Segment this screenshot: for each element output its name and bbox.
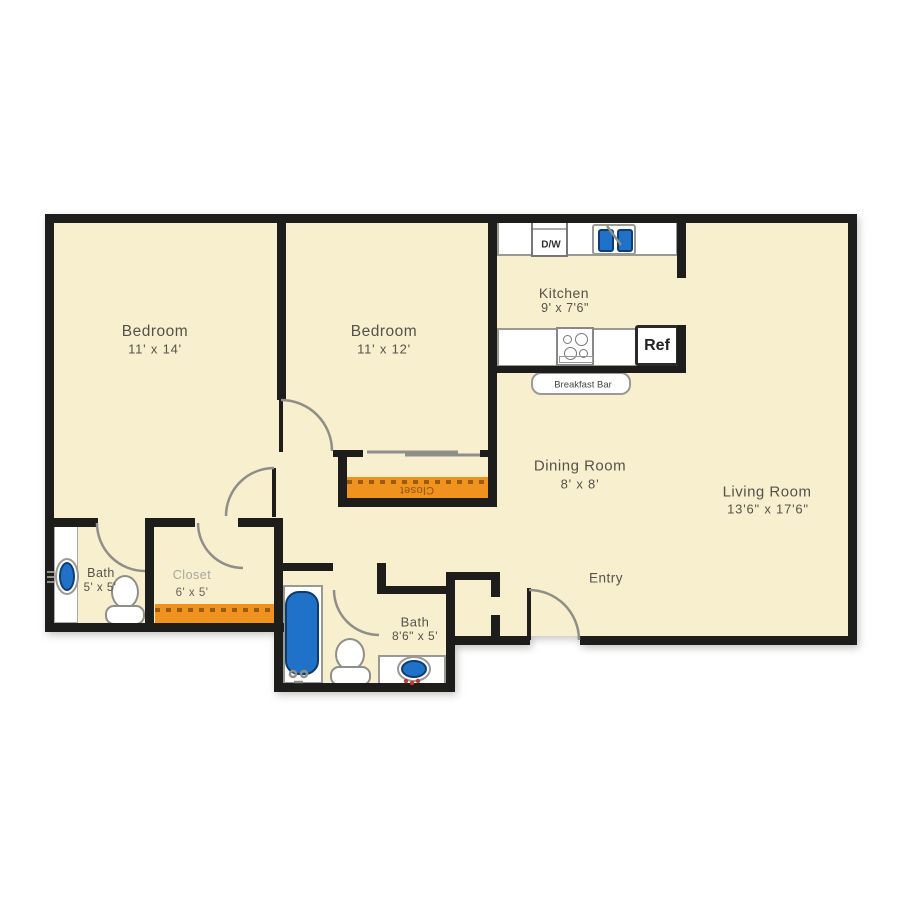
wall-exterior-top bbox=[45, 214, 857, 223]
floor-bedroom2-hall bbox=[277, 218, 497, 571]
wall-exterior-bottom-right-b bbox=[580, 636, 857, 645]
floor-living-dining bbox=[493, 218, 853, 636]
bath1-dims: 5' x 5' bbox=[84, 582, 117, 594]
breakfast-bar-label: Breakfast Bar bbox=[554, 380, 612, 391]
floor-bedroom1-area bbox=[50, 218, 286, 632]
bath2-label: Bath bbox=[401, 615, 430, 630]
sink-bowl bbox=[59, 562, 75, 591]
breakfast-bar: Breakfast Bar bbox=[531, 372, 631, 395]
bathtub-icon bbox=[285, 591, 319, 675]
dining-room-dims: 8' x 8' bbox=[561, 477, 600, 492]
bath1-sink-icon bbox=[55, 558, 79, 595]
living-room-label: Living Room bbox=[723, 484, 812, 501]
stove-drawer bbox=[559, 356, 593, 363]
bath2-sink-icon bbox=[397, 656, 431, 682]
bedroom1-dims: 11' x 14' bbox=[128, 342, 182, 357]
sink-basin-right bbox=[617, 229, 633, 252]
bedroom1-label: Bedroom bbox=[122, 323, 188, 341]
stove-icon bbox=[556, 327, 594, 366]
floor-plan-canvas: Closet D/W Ref Breakfast Bar bbox=[0, 0, 900, 900]
entry-label: Entry bbox=[589, 571, 623, 586]
living-room-dims: 13'6" x 17'6" bbox=[727, 502, 809, 517]
refrigerator: Ref bbox=[635, 325, 679, 366]
wall-hall-south-a bbox=[45, 518, 98, 527]
door-leaf-bedroom1 bbox=[272, 468, 276, 517]
bedroom2-label: Bedroom bbox=[351, 323, 417, 341]
bath1-toilet-tank bbox=[105, 605, 145, 625]
wall-bath2-east bbox=[446, 572, 455, 692]
kitchen-label: Kitchen bbox=[539, 285, 589, 301]
bath1-label: Bath bbox=[87, 566, 115, 580]
wall-bedroom2-east bbox=[488, 214, 497, 507]
wall-kitchen-east-top bbox=[677, 214, 686, 278]
wall-exterior-bottom-left bbox=[45, 623, 284, 632]
sink-basin-left bbox=[598, 229, 614, 252]
wall-entry-closet-right-b bbox=[491, 615, 500, 643]
wall-bedroom-divider bbox=[277, 214, 286, 400]
kitchen-dims: 9' x 7'6" bbox=[541, 301, 589, 315]
wall-bath2-west bbox=[274, 518, 283, 692]
wall-bath2-top-right bbox=[377, 586, 447, 594]
closet-rod-dashes bbox=[155, 608, 274, 612]
wall-exterior-right bbox=[848, 214, 857, 645]
wall-entry-closet-top bbox=[446, 572, 500, 580]
wall-hall-south-c bbox=[238, 518, 283, 527]
dishwasher: D/W bbox=[531, 221, 568, 257]
sink-bowl bbox=[401, 660, 427, 678]
wall-b2closet-stub-right bbox=[480, 450, 497, 457]
door-leaf-entry bbox=[527, 588, 531, 640]
closet1-dims: 6' x 5' bbox=[176, 587, 209, 599]
door-leaf-bedroom2 bbox=[279, 400, 283, 452]
kitchen-sink bbox=[592, 224, 636, 255]
floor-plan: Closet D/W Ref Breakfast Bar bbox=[0, 0, 900, 900]
dining-room-label: Dining Room bbox=[534, 458, 626, 475]
closet1-label: Closet bbox=[173, 568, 211, 582]
bedroom2-closet-shelf: Closet bbox=[347, 477, 488, 499]
wall-b2closet-bottom bbox=[338, 498, 497, 507]
wall-bath2-bottom bbox=[275, 683, 455, 692]
dishwasher-top-line bbox=[533, 228, 566, 230]
wall-breakfast-bar bbox=[497, 366, 683, 373]
wall-b2closet-stub-left bbox=[333, 450, 363, 457]
wall-exterior-left bbox=[45, 214, 54, 632]
bath2-dims: 8'6" x 5' bbox=[392, 629, 438, 643]
wall-exterior-bottom-right-a bbox=[446, 636, 530, 645]
refrigerator-label: Ref bbox=[644, 337, 670, 355]
bedroom2-dims: 11' x 12' bbox=[357, 342, 411, 357]
wall-bath1-closet-divider bbox=[145, 523, 154, 627]
wall-bath2-top-left bbox=[283, 563, 333, 571]
kitchen-counter-top bbox=[497, 221, 678, 256]
dishwasher-label: D/W bbox=[541, 240, 560, 251]
wall-entry-closet-right-a bbox=[491, 580, 500, 597]
bedroom2-closet-label: Closet bbox=[400, 484, 434, 496]
